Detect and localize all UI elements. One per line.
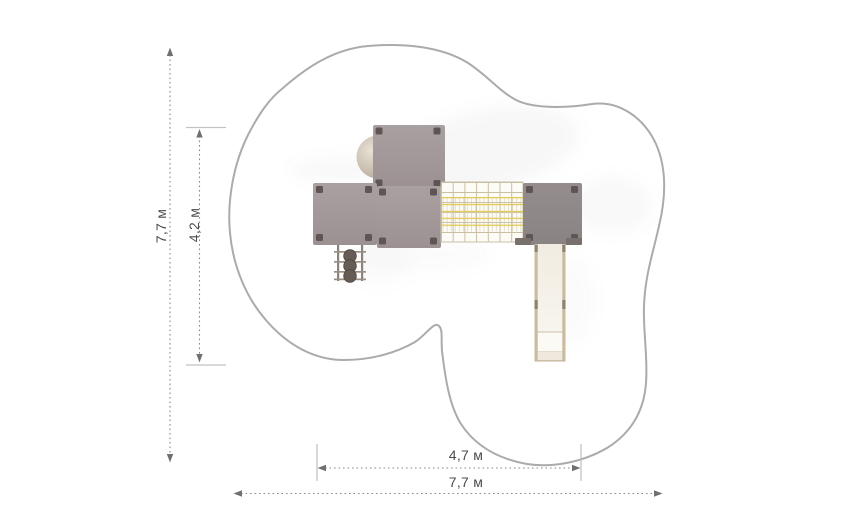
corner-post <box>379 189 386 196</box>
slide-bed <box>538 244 563 332</box>
corner-post <box>379 238 386 245</box>
corner-post <box>434 128 441 135</box>
climber-step <box>344 270 357 283</box>
corner-post <box>376 128 383 135</box>
slide-crossband <box>538 332 563 352</box>
dim-arrow-left-icon <box>234 490 243 496</box>
dim-arrow-right-icon <box>572 465 581 471</box>
dim-label-inner-width: 4,7 м <box>438 447 494 463</box>
dimension-overall-height <box>167 48 173 463</box>
corner-post <box>430 238 437 245</box>
corner-post <box>365 186 372 193</box>
corner-post <box>316 234 323 241</box>
corner-post <box>434 180 441 187</box>
dim-arrow-left-icon <box>318 465 327 471</box>
corner-post <box>526 186 533 193</box>
dim-label-inner-height: 4,2 м <box>186 197 202 253</box>
dim-label-overall-width: 7,7 м <box>438 474 494 490</box>
dim-label-overall-height: 7,7 м <box>153 198 169 254</box>
net-bridge <box>441 182 523 242</box>
dimension-overall-width <box>234 490 663 496</box>
corner-post <box>316 186 323 193</box>
climber-rail <box>337 245 339 281</box>
climber-rail <box>361 245 363 281</box>
corner-post <box>365 234 372 241</box>
dim-arrow-down-icon <box>167 454 173 463</box>
plan-graphic <box>0 0 850 530</box>
slide-runout <box>538 352 563 360</box>
corner-post <box>430 189 437 196</box>
slide-mount-left <box>515 238 531 245</box>
platform-right <box>523 183 582 245</box>
climber-steps <box>334 245 366 282</box>
dim-arrow-right-icon <box>654 490 663 496</box>
playground-plan: 7,7 м 4,2 м 4,7 м 7,7 м <box>0 0 850 530</box>
tower-roof-top <box>373 125 445 188</box>
corner-post <box>571 186 578 193</box>
dim-arrow-up-icon <box>167 48 173 57</box>
platform-left <box>313 183 377 245</box>
dim-arrow-down-icon <box>196 354 202 363</box>
dim-arrow-up-icon <box>196 129 202 138</box>
platform-middle <box>377 186 441 248</box>
net-rope-band <box>441 197 523 232</box>
slide-mount-right <box>566 238 582 245</box>
